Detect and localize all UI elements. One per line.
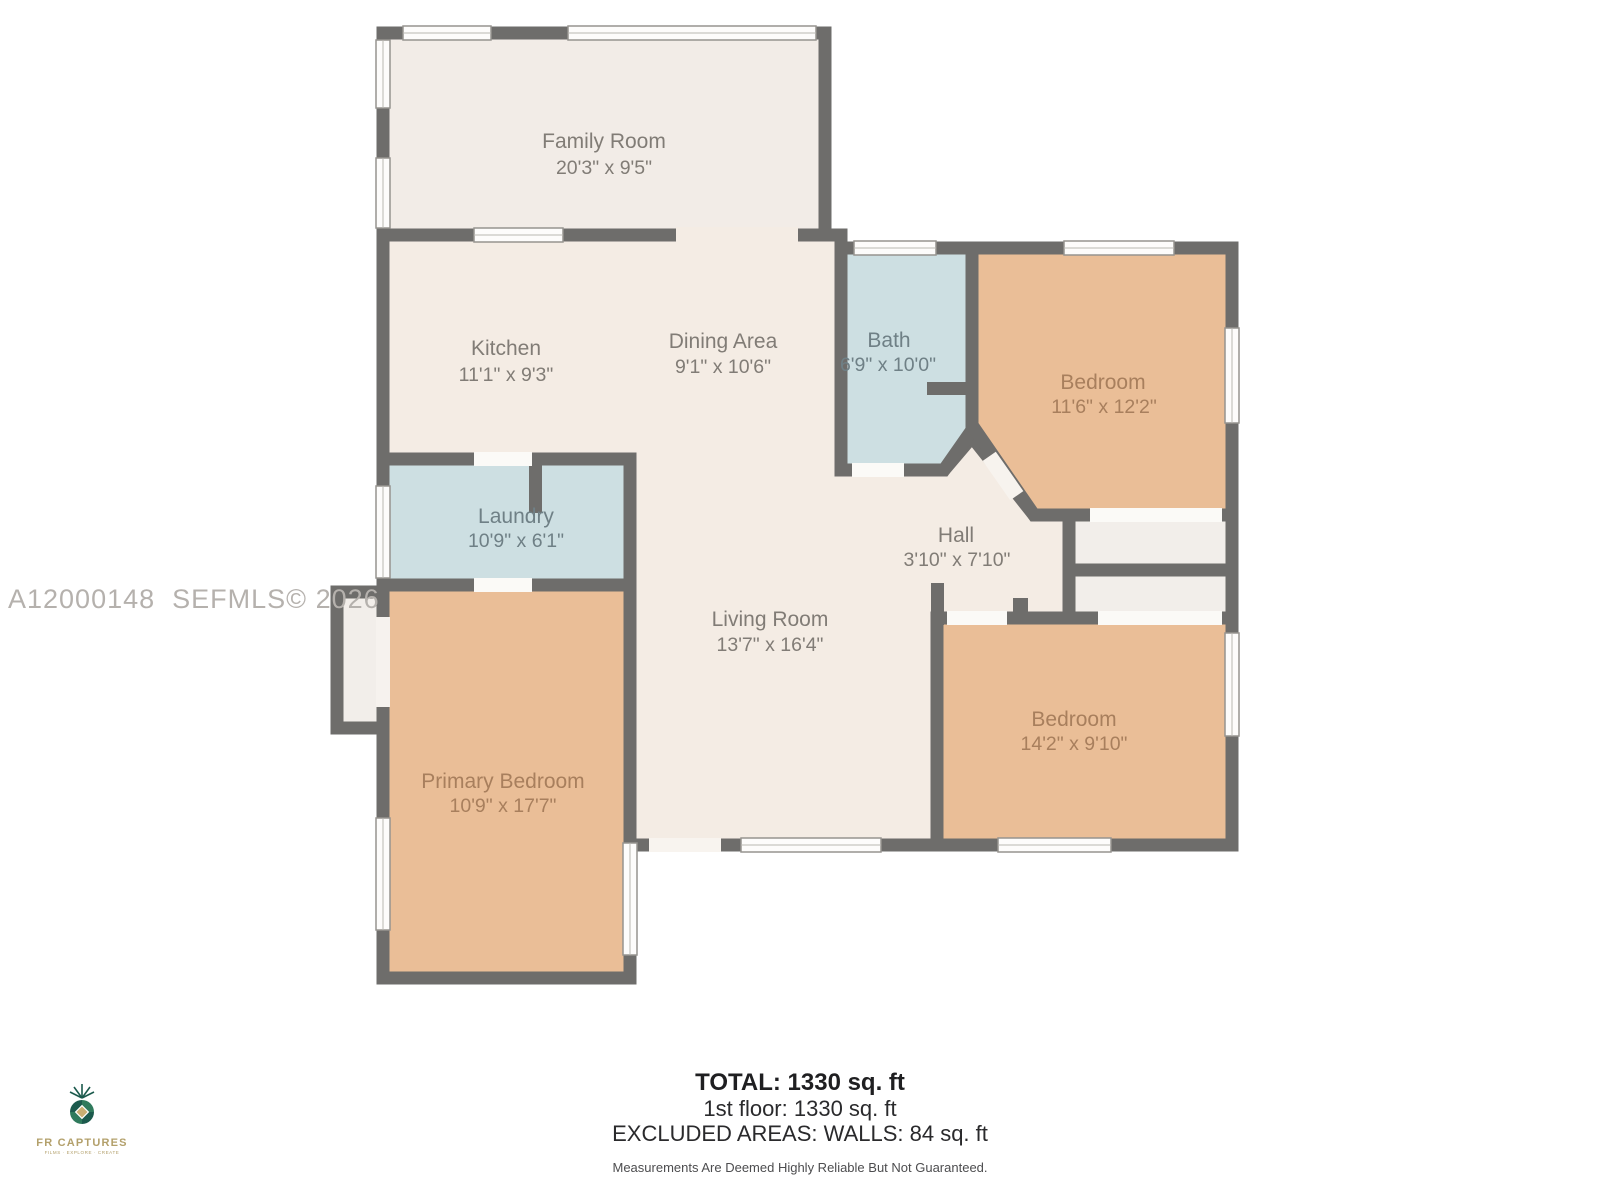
label-kitchen-dims: 11'1" x 9'3" (459, 364, 554, 386)
label-bedroom-bottom: Bedroom (1031, 708, 1116, 731)
label-dining-area: Dining Area (669, 330, 778, 353)
label-family-room-dims: 20'3" x 9'5" (556, 157, 652, 179)
door-bath (852, 463, 904, 477)
opening-primary-closet (376, 617, 390, 707)
opening-family-dining (676, 227, 798, 244)
label-family-room: Family Room (542, 130, 666, 153)
area-summary: TOTAL: 1330 sq. ft 1st floor: 1330 sq. f… (0, 1070, 1600, 1175)
label-living-room: Living Room (712, 608, 829, 631)
label-dining-area-dims: 9'1" x 10'6" (675, 356, 771, 378)
wall-stub-bath-partition (927, 382, 972, 395)
label-kitchen: Kitchen (471, 337, 541, 360)
first-floor-area-text: 1st floor: 1330 sq. ft (0, 1096, 1600, 1121)
label-bedroom-top-dims: 11'6" x 12'2" (1051, 396, 1157, 418)
total-area-text: TOTAL: 1330 sq. ft (0, 1070, 1600, 1096)
room-bedroom-bottom (937, 618, 1232, 845)
door-bedroom-bottom (947, 611, 1007, 625)
floor-plan-page: Family Room 20'3" x 9'5" Kitchen 11'1" x… (0, 0, 1600, 1200)
label-primary-bedroom: Primary Bedroom (421, 770, 584, 793)
door-laundry-top (474, 452, 532, 466)
label-hall-dims: 3'10" x 7'10" (904, 549, 1011, 571)
label-laundry: Laundry (478, 505, 554, 528)
mls-watermark: A12000148 SEFMLS© 2026 (8, 584, 380, 615)
closet-top-bedroom (1069, 515, 1232, 570)
label-hall: Hall (938, 524, 974, 547)
door-laundry-bottom (474, 578, 532, 592)
label-primary-bedroom-dims: 10'9" x 17'7" (450, 795, 557, 817)
opening-closet-top (1090, 508, 1222, 522)
closet-bottom-bedroom (1069, 570, 1232, 618)
opening-closet-bottom (1098, 611, 1222, 625)
label-living-room-dims: 13'7" x 16'4" (717, 634, 824, 656)
label-bath: Bath (867, 329, 910, 352)
door-entry-living (649, 838, 721, 852)
wall-stub-hall-bottom (1013, 598, 1028, 620)
label-bedroom-top: Bedroom (1060, 371, 1145, 394)
excluded-area-text: EXCLUDED AREAS: WALLS: 84 sq. ft (0, 1121, 1600, 1146)
disclaimer-text: Measurements Are Deemed Highly Reliable … (0, 1160, 1600, 1175)
label-bath-dims: 6'9" x 10'0" (840, 354, 936, 376)
wall-stub-hall-left (931, 583, 944, 625)
label-laundry-dims: 10'9" x 6'1" (468, 530, 564, 552)
label-bedroom-bottom-dims: 14'2" x 9'10" (1021, 733, 1128, 755)
